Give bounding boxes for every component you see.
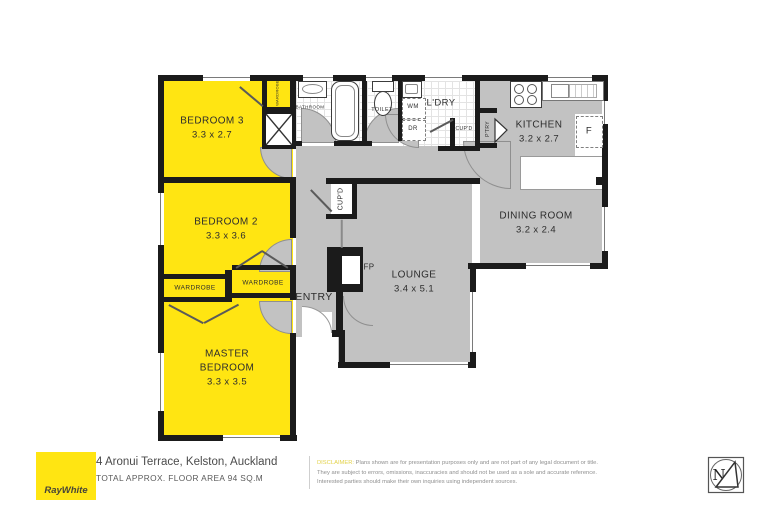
stove (510, 81, 542, 108)
wall-pantry-top (475, 108, 497, 113)
wall-bathroom-stub (296, 141, 302, 146)
floor-area-text: TOTAL APPROX. FLOOR AREA 94 SQ.M (96, 473, 263, 483)
kitchen-dims: 3.2 x 2.7 (519, 134, 559, 145)
master-dims: 3.3 x 3.5 (207, 377, 247, 388)
kitchen-sink (551, 84, 569, 98)
window-bedroom2-left (158, 193, 164, 245)
bedroom2-dims: 3.3 x 3.6 (206, 231, 246, 242)
pantry-door-icon (494, 117, 510, 144)
hall-cupboard-label: CUP'D (338, 188, 345, 211)
wall-bedroom-col-b (290, 178, 296, 238)
toilet-label: TOILET (371, 107, 393, 113)
window-lounge-bottom (390, 362, 468, 368)
master-label-2: BEDROOM (200, 363, 254, 374)
entry-label: ENTRY (295, 291, 332, 303)
wall-bedroom-col-d (290, 333, 296, 441)
wall-entry-right (339, 330, 345, 368)
kitchen-bench (520, 156, 604, 190)
disclaimer-label: DISCLAIMER: (317, 460, 354, 466)
closet-fireplace-line (341, 220, 343, 248)
property-address: 4 Aronui Terrace, Kelston, Auckland (96, 456, 277, 468)
wall-wardrobe-divider (225, 270, 232, 302)
lounge-label: LOUNGE (392, 270, 437, 281)
window-bedroom3-top (203, 75, 250, 81)
fridge-label: F (586, 126, 592, 137)
dining-dims: 3.2 x 2.4 (516, 225, 556, 236)
bathtub (331, 81, 359, 141)
cross-icon (266, 114, 292, 145)
compass-icon: N (707, 456, 745, 494)
wall-laundry-right (475, 75, 480, 151)
laundry-cupboard-label: CUP'D (455, 126, 472, 132)
bathroom-sink (298, 81, 327, 98)
dr-label: DR (408, 126, 417, 132)
bedroom2-label: BEDROOM 2 (194, 217, 258, 228)
wall-wardrobeR-bottom (232, 293, 296, 298)
window-laundry-top (425, 75, 462, 81)
wardrobe-right-label: WARDROBE (242, 280, 283, 287)
wall-closet-bottom (326, 214, 357, 219)
wm-label: WM (407, 104, 418, 110)
kitchen-label: KITCHEN (516, 120, 563, 131)
bedroom3-dims: 3.3 x 2.7 (192, 130, 232, 141)
floorplan-page: BEDROOM 3 3.3 x 2.7 BEDROOM 2 3.3 x 3.6 … (0, 0, 768, 512)
wall-hall-lounge (356, 178, 480, 184)
kitchen-counter (542, 81, 604, 101)
wardrobe-small-label: WARDROBE (275, 80, 280, 106)
window-master-left (158, 353, 164, 411)
wall-bed3-bed2 (158, 177, 296, 183)
wardrobe-left-label: WARDROBE (174, 285, 215, 292)
linen-cupboard (262, 110, 296, 149)
master-label-1: MASTER (205, 349, 249, 360)
wall-laundry-bottom (438, 146, 480, 151)
sink-drainer (569, 84, 597, 98)
laundry-tub (402, 81, 422, 98)
wall-bed2-bottom (158, 274, 228, 279)
fireplace-label: FP (363, 263, 374, 272)
disclaimer-line1: Plans shown are for presentation purpose… (354, 460, 598, 466)
lounge-dims: 3.4 x 5.1 (394, 284, 434, 295)
bedroom3-label: BEDROOM 3 (180, 116, 244, 127)
window-dining-right (602, 207, 608, 251)
pantry-label: P'TRY (485, 121, 491, 137)
wall-toilet-stub (362, 141, 372, 146)
wall-wardrobeL-bottom (163, 297, 228, 302)
raywhite-logo: RayWhite (36, 452, 96, 500)
footer-divider (309, 456, 310, 489)
window-master-bottom (223, 435, 280, 441)
window-lounge-right (470, 292, 476, 352)
wall-below-fireplace (336, 292, 343, 332)
wall-laundry-cupboard (450, 118, 455, 146)
window-dining-bottom (526, 263, 590, 269)
disclaimer-line2: They are subject to errors, omissions, i… (317, 470, 597, 476)
wall-bath-toilet (362, 75, 367, 146)
wall-bathroom-bottom (334, 141, 362, 146)
fireplace-hearth (342, 256, 360, 284)
raywhite-logo-text: RayWhite (36, 485, 96, 496)
wall-closet-right (352, 178, 357, 219)
disclaimer-text: DISCLAIMER: Plans shown are for presenta… (317, 459, 603, 488)
bathroom-label: BATHROOM (296, 105, 325, 110)
wall-bench-stub (596, 177, 604, 185)
dining-label: DINING ROOM (499, 211, 572, 222)
disclaimer-line3: Interested parties should make their own… (317, 479, 517, 485)
laundry-label: L'DRY (427, 98, 456, 109)
